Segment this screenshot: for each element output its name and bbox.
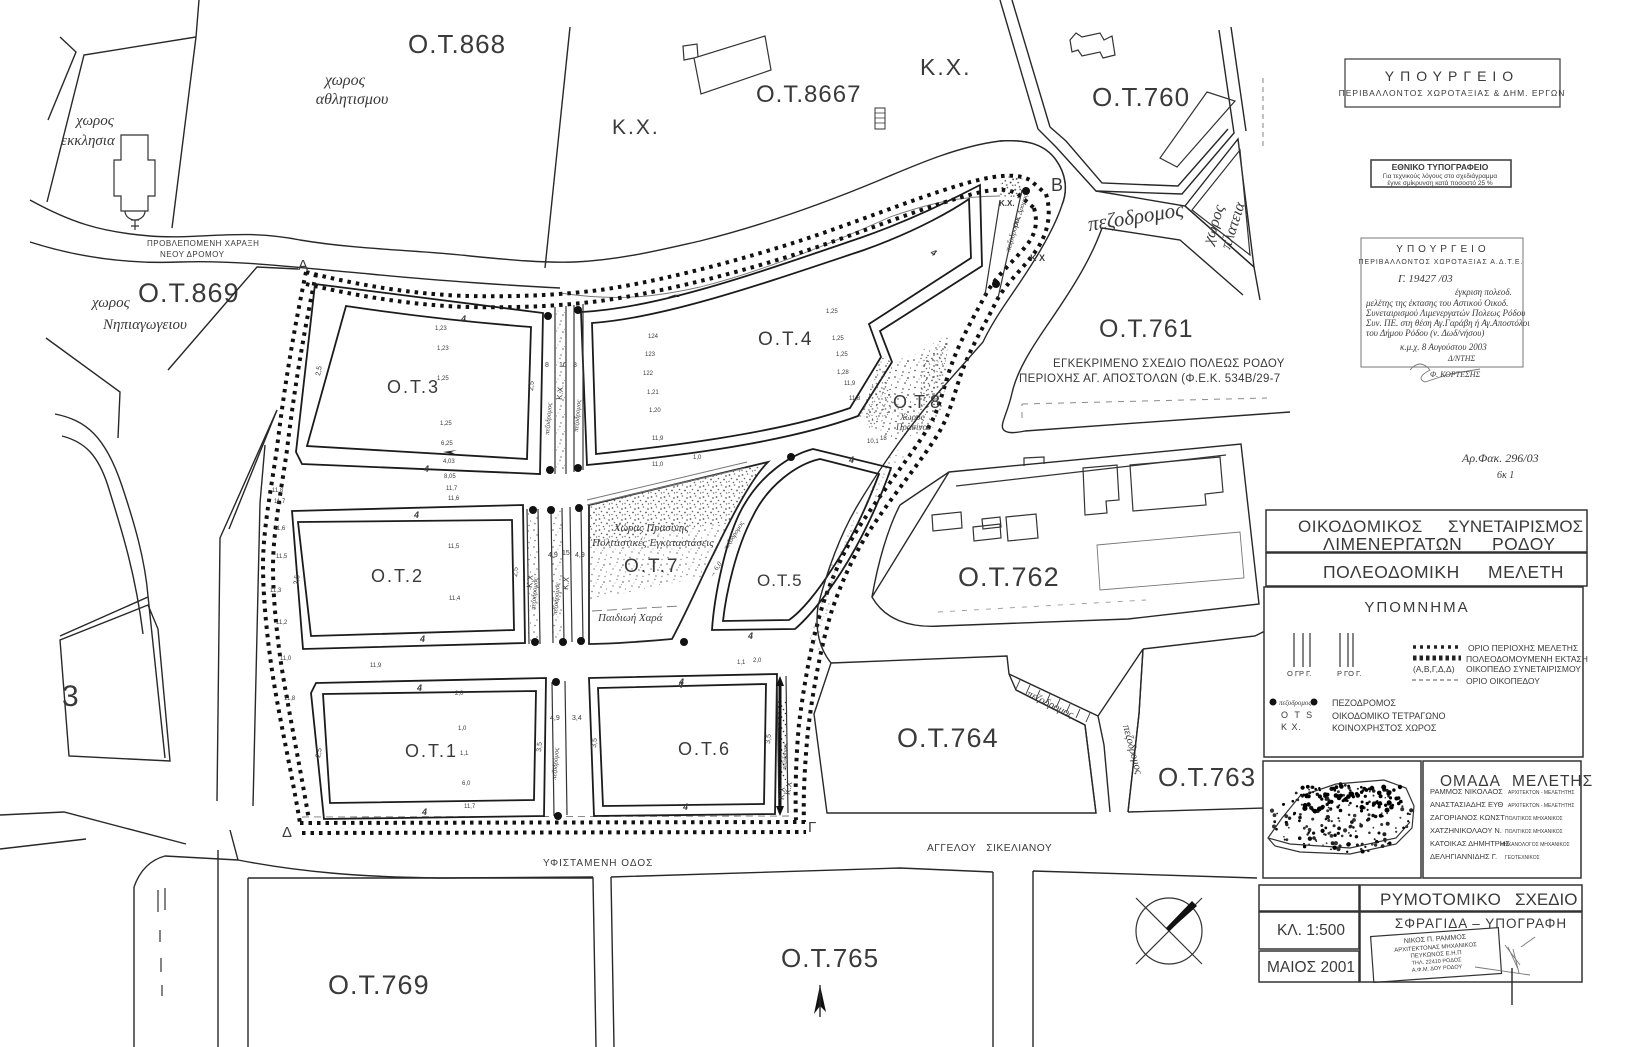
svg-text:11,6: 11,6 bbox=[448, 496, 460, 502]
svg-text:11,5: 11,5 bbox=[448, 544, 460, 550]
svg-text:3,5: 3,5 bbox=[536, 742, 544, 752]
svg-text:6,0: 6,0 bbox=[462, 781, 471, 787]
svg-text:2,0: 2,0 bbox=[455, 691, 464, 697]
svg-text:2,5: 2,5 bbox=[528, 381, 536, 391]
svg-text:ΝΕΟΥ ΔΡΟΜΟΥ: ΝΕΟΥ ΔΡΟΜΟΥ bbox=[160, 250, 225, 259]
svg-text:4: 4 bbox=[678, 677, 684, 687]
svg-text:Κ.Χ: Κ.Χ bbox=[525, 574, 535, 588]
svg-text:10: 10 bbox=[559, 362, 567, 369]
svg-text:Για τεχνικούς λόγους στο σχεδι: Για τεχνικούς λόγους στο σχεδιάγραμμα bbox=[1383, 172, 1498, 180]
svg-text:1,23: 1,23 bbox=[435, 326, 447, 332]
svg-text:ΟΙΚΟΠΕΔΟ ΣΥΝΕΤΑΙΡΙΣΜΟΥ: ΟΙΚΟΠΕΔΟ ΣΥΝΕΤΑΙΡΙΣΜΟΥ bbox=[1466, 664, 1581, 674]
svg-text:Γ. 19427 /03: Γ. 19427 /03 bbox=[1397, 273, 1453, 285]
svg-text:αθλητισμου: αθλητισμου bbox=[316, 91, 389, 108]
svg-text:χωρος: χωρος bbox=[90, 295, 131, 311]
svg-text:Ο.Τ.763: Ο.Τ.763 bbox=[1158, 762, 1256, 792]
svg-text:πεζοδρομος: πεζοδρομος bbox=[781, 742, 789, 770]
svg-text:11,4: 11,4 bbox=[449, 596, 461, 602]
svg-text:ΛΙΜΕΝΕΡΓΑΤΩΝ: ΛΙΜΕΝΕΡΓΑΤΩΝ bbox=[1323, 534, 1462, 554]
svg-text:Συνεταιρισμού Λιμενεργατών Πολ: Συνεταιρισμού Λιμενεργατών Πολεως Ρόδου bbox=[1365, 308, 1525, 318]
svg-text:4: 4 bbox=[848, 455, 854, 465]
svg-text:Ο.Τ.7: Ο.Τ.7 bbox=[624, 556, 679, 577]
svg-text:Δ: Δ bbox=[282, 824, 292, 841]
svg-text:Κ Χ.: Κ Χ. bbox=[1281, 722, 1302, 732]
svg-text:ΜΕΛΕΤΗ: ΜΕΛΕΤΗ bbox=[1488, 562, 1564, 582]
svg-text:11,2: 11,2 bbox=[276, 620, 288, 626]
svg-text:ΠΕΡΙΟΧΗΣ ΑΓ. ΑΠΟΣΤΟΛΩΝ (Φ.Ε.Κ.: ΠΕΡΙΟΧΗΣ ΑΓ. ΑΠΟΣΤΟΛΩΝ (Φ.Ε.Κ. 534Β/29-7 bbox=[1019, 373, 1280, 385]
svg-text:3,4: 3,4 bbox=[572, 715, 582, 722]
svg-text:4: 4 bbox=[413, 510, 419, 520]
svg-text:1,21: 1,21 bbox=[647, 390, 659, 396]
svg-text:1,0: 1,0 bbox=[458, 726, 467, 732]
svg-text:4: 4 bbox=[419, 634, 425, 644]
svg-text:2,0: 2,0 bbox=[753, 658, 762, 664]
svg-text:Ο.Τ.5: Ο.Τ.5 bbox=[757, 571, 803, 590]
svg-text:Φ. ΚΟΡΤΕΣΗΣ: Φ. ΚΟΡΤΕΣΗΣ bbox=[1430, 370, 1481, 379]
svg-text:1,23: 1,23 bbox=[437, 346, 449, 352]
svg-text:11,6: 11,6 bbox=[274, 526, 286, 532]
svg-text:Ο.Τ.6: Ο.Τ.6 bbox=[678, 739, 731, 759]
svg-text:1,1: 1,1 bbox=[460, 751, 469, 757]
svg-text:1,25: 1,25 bbox=[832, 336, 844, 342]
svg-text:ΔΕΛΗΓΙΑΝΝΙΔΗΣ Γ.: ΔΕΛΗΓΙΑΝΝΙΔΗΣ Γ. bbox=[1430, 852, 1497, 861]
svg-text:ΜΗΧΑΝΟΛΟΓΟΣ ΜΗΧΑΝΙΚΟΣ: ΜΗΧΑΝΟΛΟΓΟΣ ΜΗΧΑΝΙΚΟΣ bbox=[1500, 842, 1570, 848]
svg-text:Ο.Τ.762: Ο.Τ.762 bbox=[958, 562, 1060, 592]
svg-text:Πολιτιστικές Εγκαταστάσεις: Πολιτιστικές Εγκαταστάσεις bbox=[591, 537, 714, 549]
svg-text:4: 4 bbox=[421, 807, 427, 817]
svg-text:ΥΠΟΥΡΓΕΙΟ: ΥΠΟΥΡΓΕΙΟ bbox=[1385, 68, 1519, 84]
svg-text:Α: Α bbox=[298, 257, 308, 274]
svg-text:ΚΟΙΝΟΧΡΗΣΤΟΣ ΧΩΡΟΣ: ΚΟΙΝΟΧΡΗΣΤΟΣ ΧΩΡΟΣ bbox=[1332, 723, 1437, 733]
svg-text:Κ.Χ.: Κ.Χ. bbox=[999, 199, 1015, 208]
svg-text:ΥΦΙΣΤΑΜΕΝΗ ΟΔΟΣ: ΥΦΙΣΤΑΜΕΝΗ ΟΔΟΣ bbox=[543, 858, 653, 869]
svg-text:124: 124 bbox=[648, 334, 659, 340]
svg-text:8: 8 bbox=[545, 362, 549, 369]
svg-text:ΖΑΓΟΡΙΑΝΟΣ ΚΩΝΣΤ: ΖΑΓΟΡΙΑΝΟΣ ΚΩΝΣΤ bbox=[1430, 813, 1505, 822]
svg-text:Β: Β bbox=[1051, 175, 1063, 195]
svg-text:123: 123 bbox=[645, 352, 656, 358]
svg-text:ΜΑΙΟΣ 2001: ΜΑΙΟΣ 2001 bbox=[1267, 959, 1355, 976]
svg-text:1,28: 1,28 bbox=[837, 370, 849, 376]
svg-text:18: 18 bbox=[880, 436, 887, 442]
svg-text:ΥΠΟΜΝΗΜΑ: ΥΠΟΜΝΗΜΑ bbox=[1364, 599, 1469, 616]
svg-text:κ.μ.χ. 8 Αυγούστου 2003: κ.μ.χ. 8 Αυγούστου 2003 bbox=[1400, 342, 1487, 352]
svg-text:10,1: 10,1 bbox=[867, 439, 879, 445]
svg-text:Ο.Τ.2: Ο.Τ.2 bbox=[371, 566, 424, 586]
svg-text:ΡΥΜΟΤΟΜΙΚΟ: ΡΥΜΟΤΟΜΙΚΟ bbox=[1380, 890, 1501, 909]
svg-text:1,25: 1,25 bbox=[836, 352, 848, 358]
svg-text:ΟΙΚΟΔΟΜΙΚΟ ΤΕΤΡΑΓΩΝΟ: ΟΙΚΟΔΟΜΙΚΟ ΤΕΤΡΑΓΩΝΟ bbox=[1332, 711, 1445, 721]
svg-text:11,8: 11,8 bbox=[272, 488, 284, 494]
svg-text:Ο.Τ.1: Ο.Τ.1 bbox=[405, 741, 458, 761]
svg-text:3: 3 bbox=[62, 680, 79, 713]
svg-text:11,8: 11,8 bbox=[849, 396, 861, 402]
svg-text:ΠΕΡΙΒΑΛΛΟΝΤΟΣ ΧΩΡΟΤΑΞΙΑΣ & ΔΗΜ: ΠΕΡΙΒΑΛΛΟΝΤΟΣ ΧΩΡΟΤΑΞΙΑΣ & ΔΗΜ. ΕΡΓΩΝ bbox=[1339, 88, 1566, 98]
svg-text:11,3: 11,3 bbox=[270, 588, 282, 594]
svg-text:Ο.Τ.3: Ο.Τ.3 bbox=[387, 377, 440, 397]
svg-text:6κ 1: 6κ 1 bbox=[1497, 470, 1514, 481]
svg-text:ΟΡΙΟ ΠΕΡΙΟΧΗΣ ΜΕΛΕΤΗΣ: ΟΡΙΟ ΠΕΡΙΟΧΗΣ ΜΕΛΕΤΗΣ bbox=[1468, 643, 1578, 653]
svg-text:11,7: 11,7 bbox=[446, 486, 458, 492]
svg-text:Χώρας Πρασίνης: Χώρας Πρασίνης bbox=[613, 522, 689, 534]
svg-text:ΠΡΟΒΛΕΠΟΜΕΝΗ ΧΑΡΑΞΗ: ΠΡΟΒΛΕΠΟΜΕΝΗ ΧΑΡΑΞΗ bbox=[147, 239, 259, 248]
svg-text:Γ: Γ bbox=[808, 819, 816, 836]
svg-text:ΡΟΔΟΥ: ΡΟΔΟΥ bbox=[1492, 534, 1555, 554]
svg-text:ΕΓΚΕΚΡΙΜΕΝΟ ΣΧΕΔΙΟ ΠΟΛΕΩΣ ΡΟΔΟ: ΕΓΚΕΚΡΙΜΕΝΟ ΣΧΕΔΙΟ ΠΟΛΕΩΣ ΡΟΔΟΥ bbox=[1053, 358, 1285, 370]
svg-text:11,9: 11,9 bbox=[652, 436, 664, 442]
svg-text:ΠΟΛΙΤΙΚΟΣ ΜΗΧΑΝΙΚΟΣ: ΠΟΛΙΤΙΚΟΣ ΜΗΧΑΝΙΚΟΣ bbox=[1505, 829, 1563, 835]
svg-text:ΠΕΖΟΔΡΟΜΟΣ: ΠΕΖΟΔΡΟΜΟΣ bbox=[1332, 698, 1396, 708]
svg-text:Αρ.Φακ. 296/03: Αρ.Φακ. 296/03 bbox=[1461, 451, 1539, 465]
svg-text:Ρ ΓΟ Γ.: Ρ ΓΟ Γ. bbox=[1337, 669, 1361, 678]
svg-text:11,7: 11,7 bbox=[274, 499, 286, 505]
svg-text:Ο ΓΡ Γ.: Ο ΓΡ Γ. bbox=[1287, 669, 1311, 678]
svg-text:1,20: 1,20 bbox=[649, 408, 661, 414]
svg-text:ΟΡΙΟ ΟΙΚΟΠΕΔΟΥ: ΟΡΙΟ ΟΙΚΟΠΕΔΟΥ bbox=[1466, 676, 1540, 686]
svg-text:4: 4 bbox=[460, 314, 466, 324]
svg-text:ΑΓΓΕΛΟΥ ΣΙΚΕΛΙΑΝΟΥ: ΑΓΓΕΛΟΥ ΣΙΚΕΛΙΑΝΟΥ bbox=[927, 843, 1052, 854]
svg-text:2,5: 2,5 bbox=[512, 567, 520, 577]
svg-text:11,9: 11,9 bbox=[844, 381, 856, 387]
svg-text:ΧΑΤΖΗΝΙΚΟΛΑΟΥ Ν.: ΧΑΤΖΗΝΙΚΟΛΑΟΥ Ν. bbox=[1430, 826, 1502, 835]
svg-text:έγκριση πολεοδ.: έγκριση πολεοδ. bbox=[1455, 287, 1512, 297]
svg-text:Ο.Τ.760: Ο.Τ.760 bbox=[1092, 82, 1190, 112]
svg-text:του Δήμου Ρόδου (ν. Δωδ/νήσου): του Δήμου Ρόδου (ν. Δωδ/νήσου) bbox=[1366, 328, 1484, 338]
svg-text:ΓΕΩΤΕΧΝΙΚΟΣ: ΓΕΩΤΕΧΝΙΚΟΣ bbox=[1505, 855, 1540, 861]
svg-text:Ο.Τ.764: Ο.Τ.764 bbox=[897, 723, 999, 753]
svg-text:4: 4 bbox=[416, 683, 422, 693]
svg-text:ΕΘΝΙΚΟ ΤΥΠΟΓΡΑΦΕΙΟ: ΕΘΝΙΚΟ ΤΥΠΟΓΡΑΦΕΙΟ bbox=[1392, 162, 1489, 172]
svg-text:11,8: 11,8 bbox=[284, 696, 296, 702]
svg-text:Κ.Χ.: Κ.Χ. bbox=[612, 116, 660, 139]
svg-text:4: 4 bbox=[747, 631, 753, 641]
svg-text:1,25: 1,25 bbox=[440, 421, 452, 427]
svg-text:μελέτης της έκτασης του Αστικο: μελέτης της έκτασης του Αστικού Οικοδ. bbox=[1365, 298, 1508, 308]
svg-text:εκκλησια: εκκλησια bbox=[61, 133, 116, 149]
svg-text:Νηπιαγωγειου: Νηπιαγωγειου bbox=[102, 317, 187, 333]
svg-text:3,5: 3,5 bbox=[591, 738, 599, 748]
svg-text:1,0: 1,0 bbox=[693, 455, 702, 461]
svg-text:ΑΝΑΣΤΑΣΙΑΔΗΣ ΕΥΘ: ΑΝΑΣΤΑΣΙΑΔΗΣ ΕΥΘ bbox=[1430, 800, 1504, 809]
svg-text:έγινε σμίκρυνση κατά ποσοστό: έγινε σμίκρυνση κατά ποσοστό 25 % bbox=[1387, 179, 1493, 187]
svg-text:122: 122 bbox=[643, 371, 654, 377]
svg-text:ΣΧΕΔΙΟ: ΣΧΕΔΙΟ bbox=[1515, 890, 1578, 909]
svg-text:15: 15 bbox=[562, 550, 570, 557]
svg-text:ΑΡΧΙΤΕΚΤΩΝ - ΜΕΛΕΤΗΤΗΣ: ΑΡΧΙΤΕΚΤΩΝ - ΜΕΛΕΤΗΤΗΣ bbox=[1508, 803, 1574, 809]
svg-text:ΑΡΧΙΤΕΚΤΩΝ - ΜΕΛΕΤΗΤΗΣ: ΑΡΧΙΤΕΚΤΩΝ - ΜΕΛΕΤΗΤΗΣ bbox=[1508, 790, 1574, 796]
svg-text:Ο.Τ.4: Ο.Τ.4 bbox=[758, 329, 813, 350]
svg-text:(Α,Β,Γ,Δ,Δ): (Α,Β,Γ,Δ,Δ) bbox=[1413, 664, 1455, 674]
svg-text:ΡΑΜΜΟΣ ΝΙΚΟΛΑΟΣ: ΡΑΜΜΟΣ ΝΙΚΟΛΑΟΣ bbox=[1430, 787, 1503, 796]
svg-text:χωρος: χωρος bbox=[74, 113, 115, 129]
svg-text:Ο.Τ.761: Ο.Τ.761 bbox=[1099, 315, 1194, 343]
svg-text:Κ.Χ: Κ.Χ bbox=[561, 576, 571, 590]
svg-text:4,9: 4,9 bbox=[550, 715, 560, 722]
svg-text:Κ Χ: Κ Χ bbox=[1030, 253, 1045, 263]
svg-text:Ο.Τ.869: Ο.Τ.869 bbox=[138, 278, 240, 308]
svg-text:ΚΑΤΟΙΚΑΣ ΔΗΜΗΤΡΗΣ: ΚΑΤΟΙΚΑΣ ΔΗΜΗΤΡΗΣ bbox=[1430, 839, 1510, 848]
svg-text:3,5: 3,5 bbox=[765, 734, 773, 744]
svg-text:4: 4 bbox=[682, 802, 688, 812]
svg-text:4,9: 4,9 bbox=[548, 552, 558, 559]
svg-text:11,0: 11,0 bbox=[280, 656, 292, 662]
svg-text:11,5: 11,5 bbox=[276, 554, 288, 560]
svg-text:11,7: 11,7 bbox=[464, 804, 476, 810]
svg-text:Ο.Τ.8667: Ο.Τ.8667 bbox=[756, 81, 861, 108]
svg-text:χωρος: χωρος bbox=[323, 72, 366, 89]
svg-text:Ο.Τ.769: Ο.Τ.769 bbox=[328, 970, 430, 1000]
svg-text:4,03: 4,03 bbox=[443, 459, 455, 465]
svg-text:πεζοδρομος: πεζοδρομος bbox=[1279, 699, 1311, 707]
svg-text:Ο.Τ.868: Ο.Τ.868 bbox=[408, 29, 506, 59]
svg-text:Συν. ΠΕ. στη θέση Αγ.Γαράβη ή: Συν. ΠΕ. στη θέση Αγ.Γαράβη ή Αγ.Αποστόλ… bbox=[1365, 318, 1530, 328]
svg-text:1,25: 1,25 bbox=[826, 309, 838, 315]
svg-text:Ο.Τ.765: Ο.Τ.765 bbox=[781, 943, 879, 973]
svg-text:Παιδιωή Χαρά: Παιδιωή Χαρά bbox=[597, 612, 663, 624]
svg-text:ΚΛ. 1:500: ΚΛ. 1:500 bbox=[1277, 922, 1345, 939]
svg-text:6,25: 6,25 bbox=[441, 441, 453, 447]
svg-text:ΠΕΡΙΒΑΛΛΟΝΤΟΣ ΧΩΡΟΤΑΞΙΑΣ Α.Δ.Τ: ΠΕΡΙΒΑΛΛΟΝΤΟΣ ΧΩΡΟΤΑΞΙΑΣ Α.Δ.Τ.Ε. bbox=[1358, 259, 1523, 266]
svg-text:ΠΟΛΕΟΔΟΜΙΚΗ: ΠΟΛΕΟΔΟΜΙΚΗ bbox=[1323, 562, 1460, 582]
svg-text:ΜΕΛΕΤΗΣ: ΜΕΛΕΤΗΣ bbox=[1512, 773, 1593, 790]
svg-text:ΠΟΛΙΤΙΚΟΣ ΜΗΧΑΝΙΚΟΣ: ΠΟΛΙΤΙΚΟΣ ΜΗΧΑΝΙΚΟΣ bbox=[1505, 816, 1563, 822]
svg-text:8: 8 bbox=[573, 362, 577, 369]
svg-text:1,25: 1,25 bbox=[437, 376, 449, 382]
svg-text:Ο.Τ.8: Ο.Τ.8 bbox=[893, 392, 941, 412]
svg-text:Δ/ΝΤΗΣ: Δ/ΝΤΗΣ bbox=[1447, 354, 1475, 363]
svg-text:Ο Τ S: Ο Τ S bbox=[1281, 710, 1314, 720]
svg-text:11,9: 11,9 bbox=[370, 663, 382, 669]
svg-text:11,0: 11,0 bbox=[652, 462, 664, 468]
svg-text:Κ.Χ.: Κ.Χ. bbox=[920, 54, 971, 80]
svg-text:8,05: 8,05 bbox=[444, 474, 456, 480]
svg-text:1,1: 1,1 bbox=[737, 660, 746, 666]
svg-text:4: 4 bbox=[423, 464, 429, 474]
svg-text:4,9: 4,9 bbox=[575, 552, 585, 559]
svg-text:ΥΠΟΥΡΓΕΙΟ: ΥΠΟΥΡΓΕΙΟ bbox=[1396, 244, 1489, 255]
svg-text:ΠΟΛΕΟΔΟΜΟΥΜΕΝΗ ΕΚΤΑΣΗ: ΠΟΛΕΟΔΟΜΟΥΜΕΝΗ ΕΚΤΑΣΗ bbox=[1466, 654, 1588, 664]
svg-text:Κ.Χ.: Κ.Χ. bbox=[555, 384, 565, 400]
